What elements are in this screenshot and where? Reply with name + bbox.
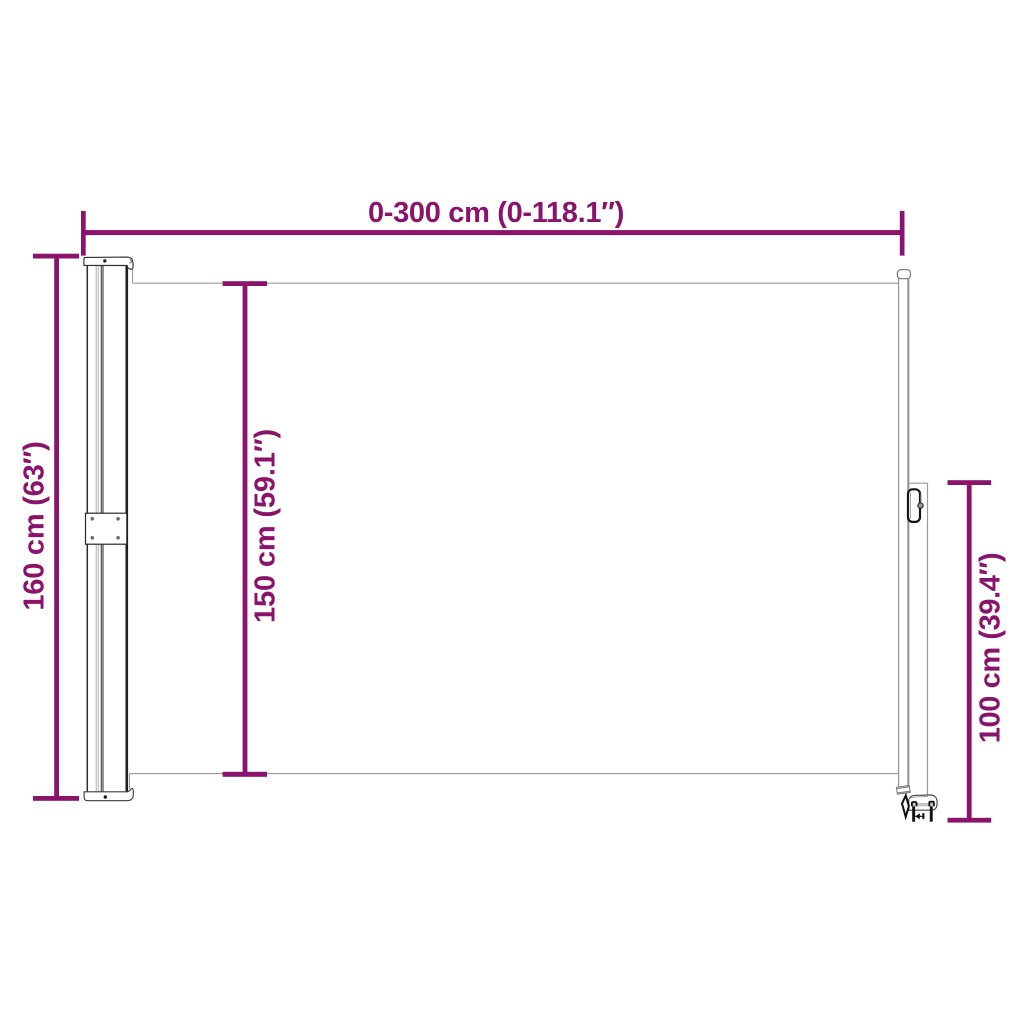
svg-text:100 cm (39.4″): 100 cm (39.4″)	[974, 553, 1006, 743]
svg-text:160 cm (63″): 160 cm (63″)	[19, 441, 51, 610]
svg-text:0-300 cm (0-118.1″): 0-300 cm (0-118.1″)	[368, 197, 624, 229]
svg-text:150 cm (59.1″): 150 cm (59.1″)	[250, 429, 282, 623]
